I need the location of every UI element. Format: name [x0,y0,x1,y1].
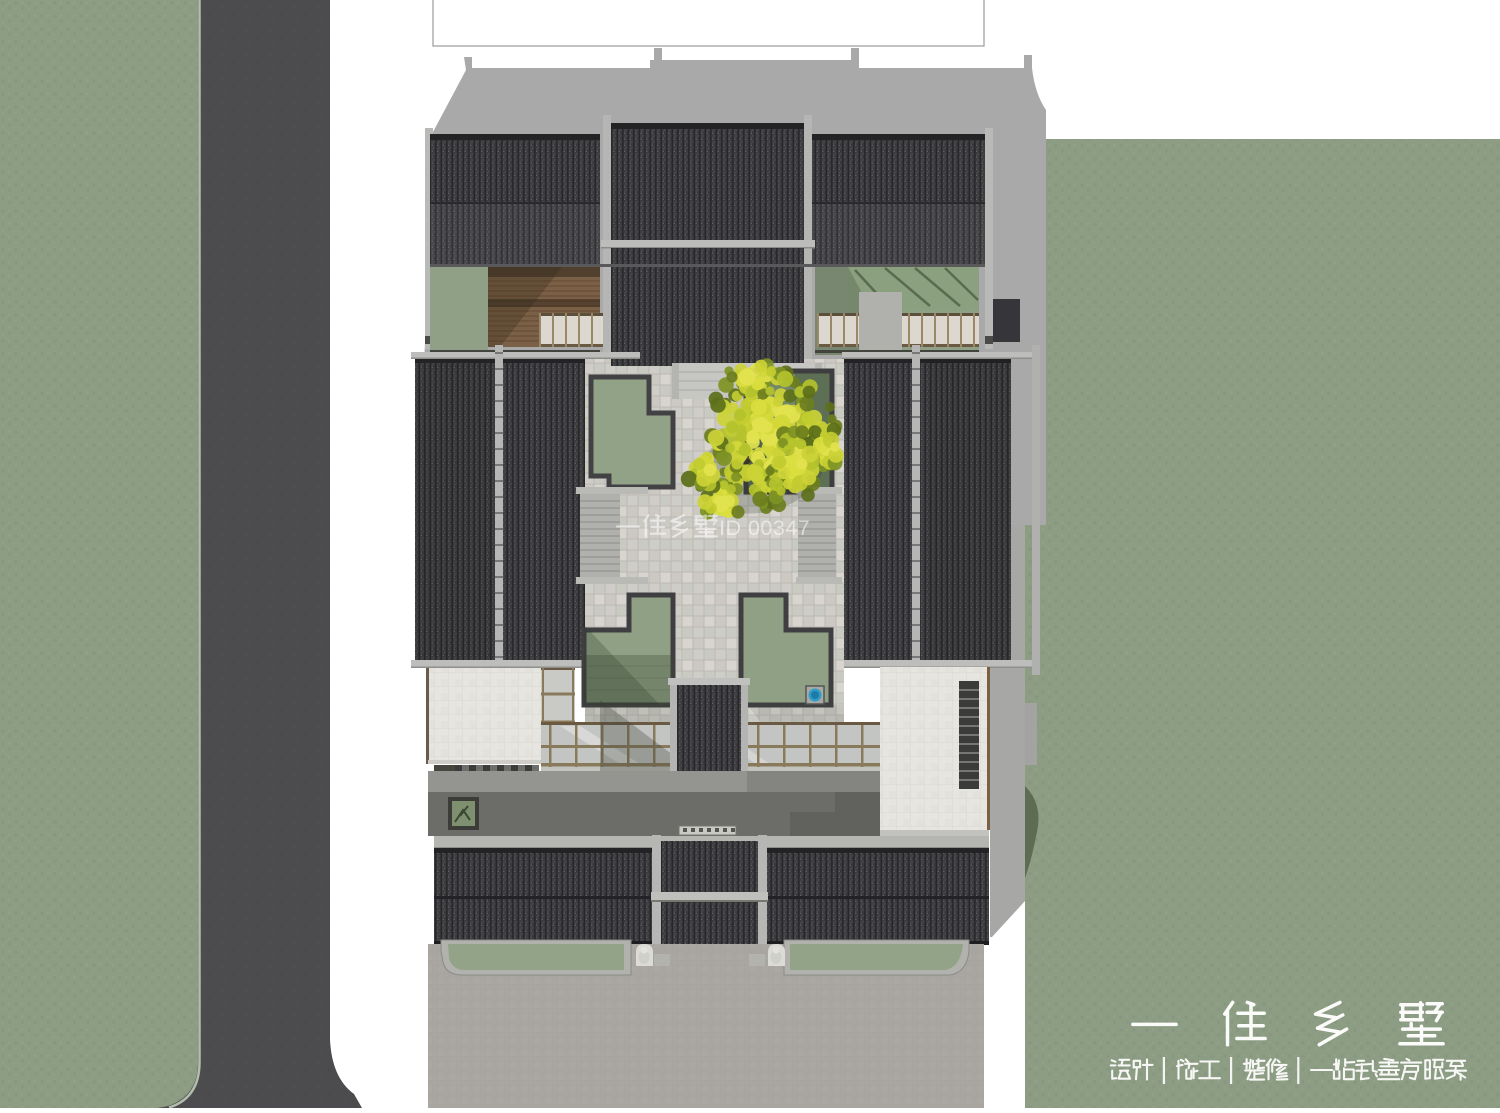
svg-text:ID 00347: ID 00347 [719,516,810,540]
